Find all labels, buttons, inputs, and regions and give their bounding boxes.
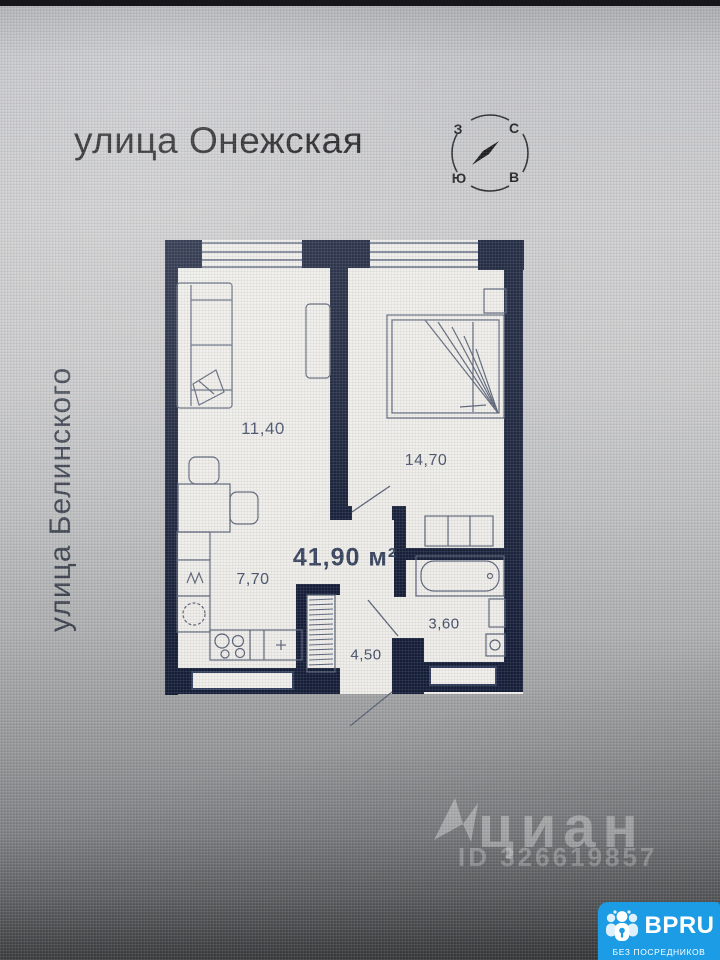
badge-tagline: БЕЗ ПОСРЕДНИКОВ [613, 947, 706, 957]
keyhole-icon [620, 927, 626, 933]
kitchen-area: 7,70 [236, 571, 269, 589]
compass-label-east: В [509, 169, 519, 185]
street-label-top: улица Онежская [74, 120, 363, 162]
compass-label-north: С [509, 120, 519, 136]
compass-label-south: Ю [452, 170, 466, 186]
photo-top-edge [0, 0, 720, 6]
entrance-door-swing [350, 692, 392, 726]
bedroom-area: 14,70 [405, 452, 448, 470]
bathroom-area: 3,60 [428, 616, 459, 633]
compass-label-west: З [454, 121, 463, 137]
bpru-badge: BPRU БЕЗ ПОСРЕДНИКОВ [598, 902, 720, 960]
badge-brand-text: BPRU [644, 914, 714, 938]
hallway-area: 4,50 [350, 647, 381, 664]
people-group-icon [603, 908, 641, 944]
living-room-area: 11,40 [241, 419, 285, 439]
compass-needle-icon [472, 141, 499, 165]
street-label-left: улица Белинского [42, 280, 80, 632]
watermark-listing-id: ID 326619857 [458, 842, 657, 873]
screen-photo: улица Онежская улица Белинского З С Ю В [0, 0, 720, 960]
total-area-label: 41,90 м² [293, 544, 397, 573]
cian-logo-icon [434, 798, 478, 842]
